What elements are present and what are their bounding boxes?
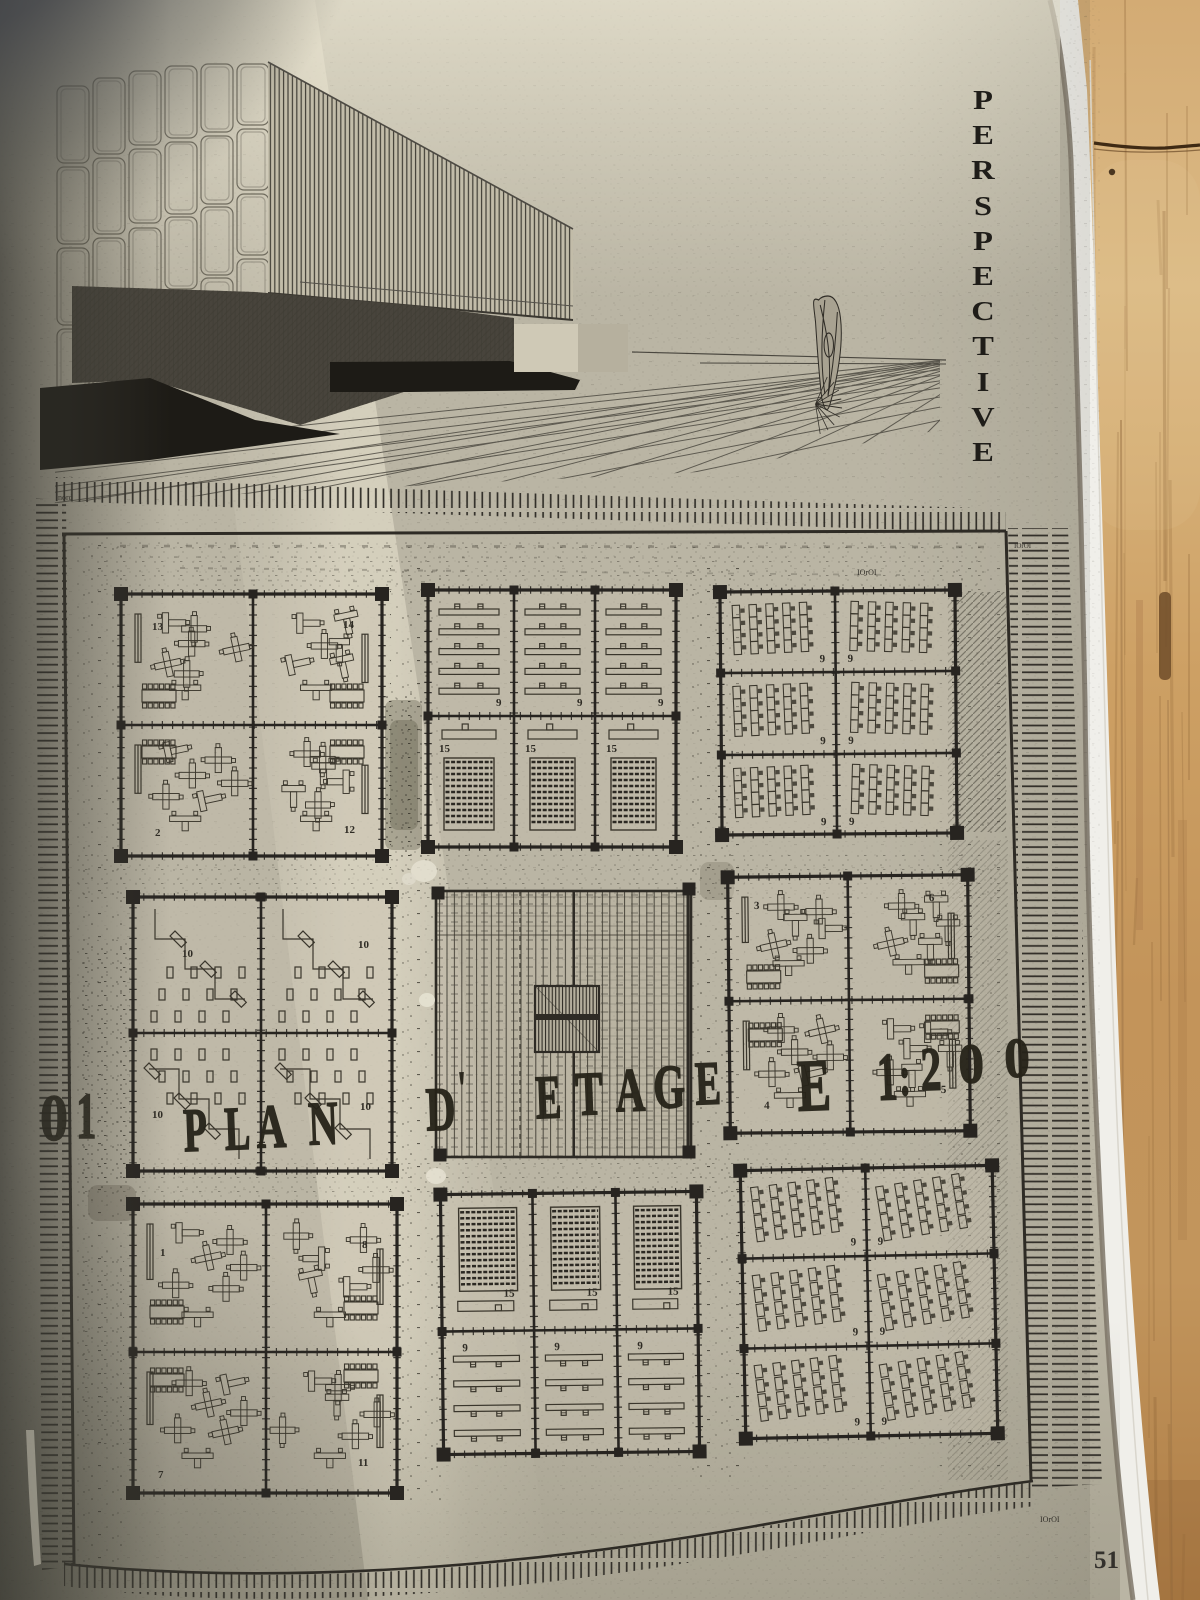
svg-text:9: 9: [577, 697, 583, 709]
svg-text:E: E: [972, 437, 994, 467]
svg-text:E: E: [534, 1063, 562, 1132]
svg-text:9: 9: [881, 1416, 887, 1428]
svg-text:9: 9: [878, 1236, 884, 1248]
svg-text:15: 15: [504, 1288, 516, 1300]
svg-text:9: 9: [853, 1326, 859, 1338]
svg-text:15: 15: [606, 743, 618, 755]
svg-text:T: T: [972, 331, 994, 361]
svg-text:9: 9: [819, 653, 825, 665]
svg-text:E: E: [972, 261, 994, 291]
svg-text:9: 9: [637, 1340, 643, 1352]
svg-text:6: 6: [929, 892, 935, 904]
svg-text:9: 9: [496, 697, 502, 709]
svg-text:12: 12: [344, 824, 356, 836]
svg-text:1: 1: [876, 1040, 899, 1116]
svg-text:51: 51: [1094, 1547, 1119, 1574]
svg-text:S: S: [974, 191, 992, 221]
svg-text:10: 10: [360, 1101, 372, 1113]
svg-text:I: I: [977, 367, 990, 397]
svg-text:2: 2: [920, 1035, 943, 1104]
svg-text:T: T: [574, 1060, 604, 1129]
svg-text:14: 14: [343, 619, 355, 631]
svg-text:IOrOI: IOrOI: [1040, 1515, 1060, 1524]
svg-text:N: N: [307, 1089, 339, 1158]
svg-text:15: 15: [668, 1286, 680, 1298]
svg-text:4: 4: [764, 1100, 770, 1112]
svg-text:P: P: [973, 85, 993, 115]
svg-text:E: E: [972, 120, 994, 150]
svg-text:A: A: [614, 1056, 646, 1125]
svg-text:15: 15: [525, 743, 537, 755]
svg-text:9: 9: [880, 1326, 886, 1338]
svg-text:C: C: [971, 296, 994, 326]
svg-text:10: 10: [182, 948, 194, 960]
svg-text:D: D: [425, 1075, 457, 1144]
svg-text:9: 9: [821, 816, 827, 828]
svg-text:9: 9: [847, 653, 853, 665]
svg-text:10: 10: [358, 939, 370, 951]
svg-text:P: P: [973, 226, 993, 256]
svg-text:V: V: [971, 402, 995, 432]
svg-text:IOrOI: IOrOI: [1014, 542, 1032, 550]
svg-text:0: 0: [1003, 1027, 1030, 1090]
svg-text:15: 15: [439, 743, 451, 755]
svg-text:9: 9: [554, 1341, 560, 1353]
svg-text:15: 15: [587, 1287, 599, 1299]
svg-text:9: 9: [462, 1342, 468, 1354]
svg-text:0: 0: [957, 1033, 984, 1096]
svg-text:9: 9: [854, 1416, 860, 1428]
svg-text:9: 9: [851, 1236, 857, 1248]
svg-text:3: 3: [754, 900, 760, 912]
svg-text:R: R: [971, 155, 995, 185]
svg-text:E: E: [694, 1049, 722, 1118]
svg-text:9: 9: [848, 735, 854, 747]
svg-text:9: 9: [849, 816, 855, 828]
svg-text:G: G: [652, 1053, 686, 1123]
svg-text::: :: [898, 1045, 912, 1108]
svg-text:9: 9: [820, 735, 826, 747]
svg-text:E: E: [796, 1044, 833, 1127]
svg-text:9: 9: [658, 697, 664, 709]
